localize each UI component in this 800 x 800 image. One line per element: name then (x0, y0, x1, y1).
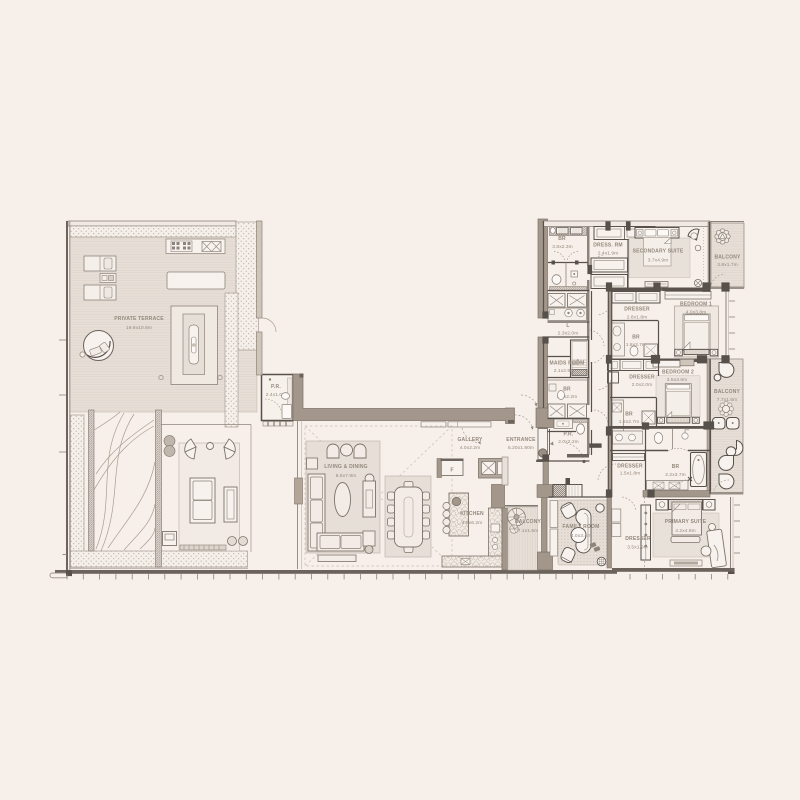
svg-text:7.1x1.6m: 7.1x1.6m (518, 528, 539, 534)
svg-text:5.20x1.80m: 5.20x1.80m (508, 445, 534, 451)
svg-text:BR: BR (625, 412, 633, 418)
svg-text:8.5x7.9m: 8.5x7.9m (336, 473, 357, 479)
svg-text:PRIVATE TERRACE: PRIVATE TERRACE (114, 316, 164, 322)
svg-text:19.8x10.8m: 19.8x10.8m (126, 325, 152, 331)
svg-text:P.R.: P.R. (564, 432, 574, 438)
svg-text:2.0x2.2m: 2.0x2.2m (558, 439, 579, 445)
svg-text:4.6x6.2m: 4.6x6.2m (462, 520, 483, 526)
svg-text:4.0x2.2m: 4.0x2.2m (460, 445, 481, 451)
svg-text:P.R.: P.R. (271, 384, 281, 390)
svg-text:BEDROOM 1: BEDROOM 1 (680, 302, 712, 308)
svg-text:BR: BR (672, 464, 680, 470)
svg-text:DRESSER: DRESSER (624, 307, 650, 313)
svg-text:2.0x2.0m: 2.0x2.0m (632, 382, 653, 388)
svg-text:3.5x1.9m: 3.5x1.9m (627, 545, 648, 551)
svg-text:3.8x2.3m: 3.8x2.3m (552, 244, 573, 250)
svg-text:DRESSER: DRESSER (617, 464, 643, 470)
svg-text:2.3x2.0m: 2.3x2.0m (558, 331, 579, 337)
svg-text:4.0x3.8m: 4.0x3.8m (686, 310, 707, 316)
svg-text:BALCONY: BALCONY (714, 255, 741, 261)
svg-text:DRESSER: DRESSER (629, 375, 655, 381)
svg-text:PRIMARY SUITE: PRIMARY SUITE (665, 519, 707, 525)
svg-text:L: L (566, 323, 569, 329)
svg-text:3.8x1.7m: 3.8x1.7m (717, 262, 738, 268)
svg-text:SECONDARY SUITE: SECONDARY SUITE (633, 249, 684, 255)
svg-text:ENTRANCE: ENTRANCE (506, 437, 536, 443)
svg-text:2.1x2.9m: 2.1x2.9m (554, 368, 575, 374)
svg-text:BALCONY: BALCONY (714, 389, 741, 395)
svg-text:KITCHEN: KITCHEN (460, 511, 484, 517)
svg-text:4.0x3.4m: 4.0x3.4m (571, 533, 592, 539)
svg-text:MAIDS ROOM: MAIDS ROOM (549, 361, 584, 367)
svg-text:DRESS. RM: DRESS. RM (593, 243, 623, 249)
svg-text:BR: BR (563, 387, 571, 393)
svg-text:2.2x3.7m: 2.2x3.7m (665, 472, 686, 478)
svg-text:4.2x4.9m: 4.2x4.9m (675, 528, 696, 534)
svg-text:BEDROOM 2: BEDROOM 2 (662, 370, 694, 376)
svg-text:1.5x1.8m: 1.5x1.8m (620, 471, 641, 477)
svg-text:BALCONY: BALCONY (515, 519, 542, 525)
svg-text:2.4x1.9m: 2.4x1.9m (598, 251, 619, 257)
svg-text:3.7x4.9m: 3.7x4.9m (648, 258, 669, 264)
svg-text:2.8x1.8m: 2.8x1.8m (627, 315, 648, 321)
svg-text:LIVING & DINING: LIVING & DINING (324, 464, 368, 470)
svg-text:DRESSER: DRESSER (625, 536, 651, 542)
svg-text:3.5x3.6m: 3.5x3.6m (667, 377, 688, 383)
svg-text:BR: BR (558, 236, 566, 242)
svg-text:BR: BR (632, 335, 640, 341)
svg-text:1.8x2.7m: 1.8x2.7m (619, 419, 640, 425)
svg-text:FAMILY ROOM: FAMILY ROOM (563, 524, 600, 530)
